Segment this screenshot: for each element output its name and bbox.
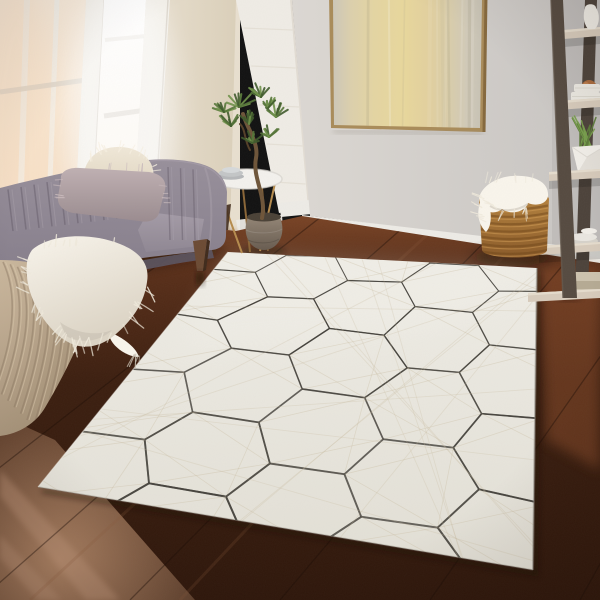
scene-canvas	[0, 0, 600, 600]
vignette	[0, 0, 600, 600]
living-room-photo	[0, 0, 600, 600]
